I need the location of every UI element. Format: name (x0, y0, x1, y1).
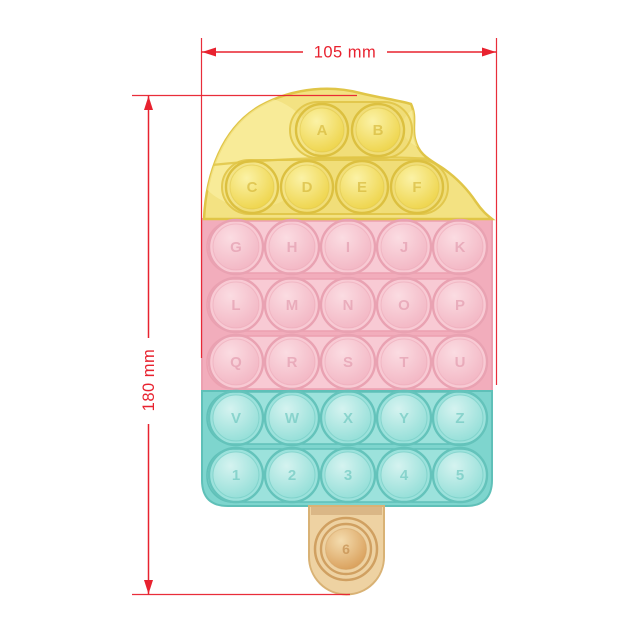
stick-top-shadow (311, 507, 382, 515)
bubble-H: H (265, 220, 319, 274)
bubble-X: X (321, 391, 375, 445)
bubble-4: 4 (377, 448, 431, 502)
product-dimension-image: ABCDEFGHIJKLMNOPQRSTUVWXYZ123456 105 mm … (0, 0, 640, 640)
bubble-embossed-label: T (399, 354, 408, 371)
bubble-Z: Z (433, 391, 487, 445)
bubble-P: P (433, 278, 487, 332)
bubble-6: 6 (321, 524, 371, 574)
bubble-I: I (321, 220, 375, 274)
bubble-embossed-label: Y (399, 410, 409, 427)
arrow-up-icon (144, 96, 153, 110)
bubble-embossed-label: P (455, 297, 465, 314)
bubble-A: A (296, 104, 348, 156)
bubble-S: S (321, 335, 375, 389)
bubble-embossed-label: G (230, 239, 242, 256)
bubble-L: L (209, 278, 263, 332)
bubble-2: 2 (265, 448, 319, 502)
bubble-K: K (433, 220, 487, 274)
bubble-embossed-label: Q (230, 354, 242, 371)
bubble-J: J (377, 220, 431, 274)
bubble-C: C (226, 161, 278, 213)
width-dimension-label: 105 mm (314, 44, 377, 62)
toy: ABCDEFGHIJKLMNOPQRSTUVWXYZ123456 (191, 89, 492, 595)
bubble-O: O (377, 278, 431, 332)
bubble-embossed-label: U (455, 354, 466, 371)
bubble-R: R (265, 335, 319, 389)
bubble-embossed-label: D (302, 179, 313, 196)
bubble-embossed-label: E (357, 179, 367, 196)
bubble-embossed-label: O (398, 297, 410, 314)
bubble-embossed-label: 3 (344, 467, 352, 484)
bubble-embossed-label: H (287, 239, 298, 256)
bubble-embossed-label: 4 (400, 467, 409, 484)
bubble-U: U (433, 335, 487, 389)
bubble-embossed-label: K (455, 239, 466, 256)
bubble-embossed-label: W (285, 410, 300, 427)
bubble-embossed-label: M (286, 297, 299, 314)
bubble-embossed-label: 6 (342, 541, 350, 557)
bubble-T: T (377, 335, 431, 389)
arrow-left-icon (202, 48, 216, 57)
bubble-embossed-label: C (247, 179, 258, 196)
bubble-M: M (265, 278, 319, 332)
arrow-down-icon (144, 580, 153, 594)
bubble-embossed-label: R (287, 354, 298, 371)
bubble-embossed-label: 2 (288, 467, 296, 484)
bubble-F: F (391, 161, 443, 213)
popsicle-pop-it-figure: ABCDEFGHIJKLMNOPQRSTUVWXYZ123456 105 mm … (0, 0, 640, 640)
bubble-Q: Q (209, 335, 263, 389)
bubble-embossed-label: Z (455, 410, 464, 427)
bubble-embossed-label: F (412, 179, 421, 196)
bubble-Y: Y (377, 391, 431, 445)
bubble-embossed-label: A (317, 122, 328, 139)
bubble-embossed-label: B (373, 122, 384, 139)
bubble-3: 3 (321, 448, 375, 502)
bubble-B: B (352, 104, 404, 156)
bubble-W: W (265, 391, 319, 445)
bubble-embossed-label: V (231, 410, 241, 427)
arrow-right-icon (482, 48, 496, 57)
bubble-embossed-label: L (231, 297, 240, 314)
bubble-embossed-label: 5 (456, 467, 464, 484)
bubble-E: E (336, 161, 388, 213)
bubble-embossed-label: X (343, 410, 353, 427)
height-dimension-label: 180 mm (140, 349, 158, 412)
bubble-embossed-label: I (346, 239, 350, 256)
bubble-embossed-label: S (343, 354, 353, 371)
bubble-embossed-label: J (400, 239, 408, 256)
bubble-embossed-label: N (343, 297, 354, 314)
bubble-embossed-label: 1 (232, 467, 240, 484)
bubble-1: 1 (209, 448, 263, 502)
bubble-V: V (209, 391, 263, 445)
bubble-5: 5 (433, 448, 487, 502)
bubble-N: N (321, 278, 375, 332)
bubble-G: G (209, 220, 263, 274)
bubble-D: D (281, 161, 333, 213)
